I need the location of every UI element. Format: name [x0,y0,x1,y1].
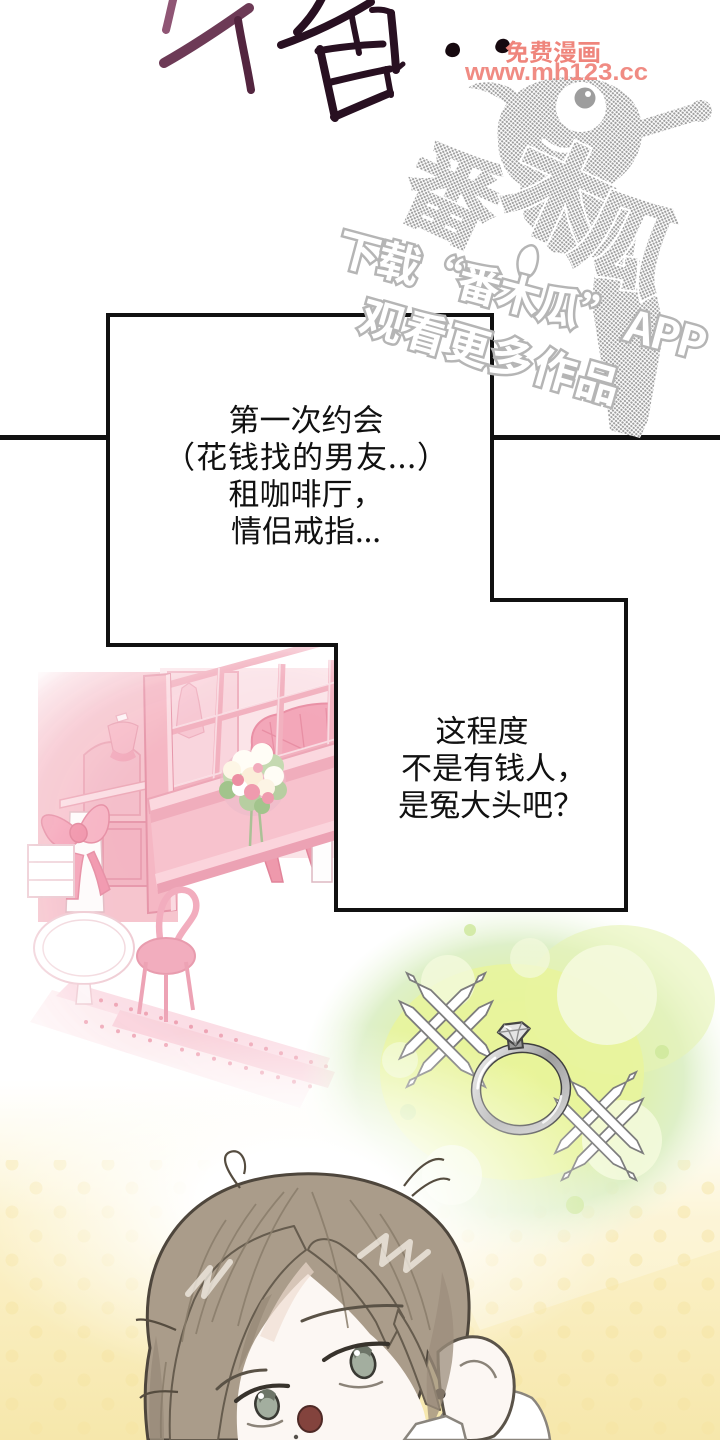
svg-text:www.mh123.cc: www.mh123.cc [464,59,648,86]
